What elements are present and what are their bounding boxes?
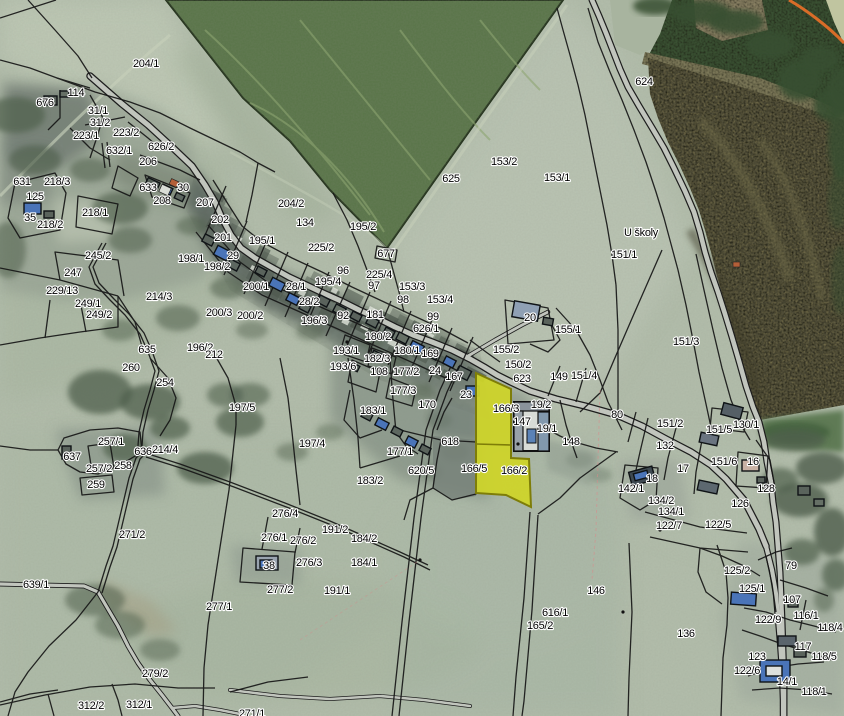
svg-text:151/2: 151/2	[657, 418, 683, 430]
svg-text:28/2: 28/2	[299, 296, 319, 308]
svg-text:276/3: 276/3	[296, 557, 322, 569]
svg-text:184/2: 184/2	[351, 533, 377, 545]
svg-text:122/5: 122/5	[705, 519, 731, 531]
svg-text:166/3: 166/3	[493, 403, 519, 415]
svg-text:191/1: 191/1	[324, 585, 350, 597]
svg-text:146: 146	[587, 585, 605, 597]
svg-text:636: 636	[134, 446, 152, 458]
svg-text:38: 38	[263, 560, 275, 572]
svg-text:30: 30	[177, 182, 189, 194]
svg-text:79: 79	[785, 560, 797, 572]
svg-text:247: 247	[64, 267, 82, 279]
svg-text:635: 635	[138, 344, 156, 356]
svg-text:626/1: 626/1	[413, 323, 439, 335]
svg-text:207: 207	[196, 197, 214, 209]
svg-text:193/1: 193/1	[333, 345, 359, 357]
svg-text:177/2: 177/2	[393, 366, 419, 378]
svg-text:24: 24	[429, 365, 441, 377]
svg-text:125/1: 125/1	[739, 583, 765, 595]
svg-text:276/1: 276/1	[261, 532, 287, 544]
svg-text:117: 117	[795, 641, 812, 653]
svg-text:153/2: 153/2	[491, 156, 517, 168]
svg-text:28/1: 28/1	[286, 281, 306, 293]
svg-text:107: 107	[783, 594, 801, 606]
svg-text:626/2: 626/2	[148, 141, 174, 153]
svg-text:249/2: 249/2	[86, 309, 112, 321]
svg-text:19/2: 19/2	[531, 399, 551, 411]
svg-text:245/2: 245/2	[85, 250, 111, 262]
svg-text:200/2: 200/2	[237, 310, 263, 322]
svg-text:623: 623	[513, 373, 531, 385]
svg-text:147: 147	[513, 416, 531, 428]
svg-text:18: 18	[646, 473, 658, 485]
svg-text:23: 23	[460, 389, 472, 401]
svg-text:166/2: 166/2	[501, 465, 527, 477]
svg-text:616/1: 616/1	[542, 607, 568, 619]
svg-text:197/4: 197/4	[299, 438, 325, 450]
svg-text:258: 258	[114, 460, 132, 472]
svg-text:181: 181	[366, 309, 384, 321]
svg-text:218/2: 218/2	[37, 219, 63, 231]
svg-text:271/2: 271/2	[119, 529, 145, 541]
svg-text:150/2: 150/2	[505, 359, 531, 371]
svg-text:198/1: 198/1	[178, 253, 204, 265]
svg-text:633: 633	[139, 182, 157, 194]
svg-text:200/3: 200/3	[206, 307, 232, 319]
svg-text:208: 208	[153, 195, 171, 207]
svg-text:195/1: 195/1	[249, 235, 275, 247]
svg-text:195/2: 195/2	[350, 221, 376, 233]
svg-text:177/1: 177/1	[387, 446, 413, 458]
svg-text:151/3: 151/3	[673, 336, 699, 348]
svg-text:214/3: 214/3	[146, 291, 172, 303]
svg-text:206: 206	[139, 156, 157, 168]
svg-text:312/2: 312/2	[78, 700, 104, 712]
svg-text:637: 637	[63, 451, 81, 463]
svg-text:197/5: 197/5	[229, 402, 255, 414]
svg-text:198/2: 198/2	[204, 261, 230, 273]
svg-text:80: 80	[611, 409, 623, 421]
svg-text:35: 35	[24, 212, 36, 224]
svg-text:122/7: 122/7	[656, 520, 682, 532]
svg-text:116/1: 116/1	[793, 610, 818, 622]
svg-text:223/1: 223/1	[73, 130, 99, 142]
svg-text:212: 212	[205, 349, 223, 361]
svg-text:169: 169	[421, 348, 439, 360]
svg-text:277/2: 277/2	[267, 584, 293, 596]
svg-text:271/1: 271/1	[239, 708, 265, 716]
svg-text:125: 125	[26, 191, 44, 203]
svg-text:195/4: 195/4	[315, 276, 341, 288]
svg-text:99: 99	[427, 311, 439, 323]
svg-text:165/2: 165/2	[527, 620, 553, 632]
svg-text:229/13: 229/13	[46, 285, 78, 297]
svg-text:180/2: 180/2	[365, 331, 391, 343]
svg-text:257/2: 257/2	[86, 463, 112, 475]
svg-text:312/1: 312/1	[126, 699, 152, 711]
svg-text:153/3: 153/3	[399, 281, 425, 293]
svg-text:108: 108	[370, 366, 388, 378]
svg-text:134/1: 134/1	[658, 506, 684, 518]
svg-text:151/5: 151/5	[706, 424, 732, 436]
svg-text:151/4: 151/4	[571, 370, 597, 382]
svg-text:153/4: 153/4	[427, 294, 453, 306]
svg-text:218/3: 218/3	[44, 176, 70, 188]
svg-text:122/6: 122/6	[734, 665, 760, 677]
svg-text:218/1: 218/1	[82, 207, 108, 219]
svg-text:225/2: 225/2	[308, 242, 334, 254]
svg-text:153/1: 153/1	[544, 172, 570, 184]
svg-text:31/1: 31/1	[88, 105, 108, 117]
svg-text:19/1: 19/1	[537, 423, 557, 435]
svg-text:151/6: 151/6	[711, 456, 737, 468]
svg-text:184/1: 184/1	[351, 557, 377, 569]
svg-text:118/5: 118/5	[811, 651, 836, 663]
svg-text:625: 625	[442, 173, 460, 185]
svg-text:134: 134	[296, 217, 314, 229]
svg-text:167: 167	[445, 371, 463, 383]
svg-text:U školy: U školy	[624, 227, 659, 239]
svg-text:214/4: 214/4	[152, 444, 178, 456]
svg-text:177/3: 177/3	[390, 385, 416, 397]
svg-text:202: 202	[211, 214, 229, 226]
svg-text:677: 677	[377, 248, 395, 260]
svg-text:149: 149	[550, 371, 568, 383]
svg-text:142/1: 142/1	[618, 483, 644, 495]
svg-text:136: 136	[677, 628, 695, 640]
svg-text:254: 254	[156, 377, 174, 389]
svg-text:17: 17	[677, 463, 689, 475]
svg-text:98: 98	[397, 294, 409, 306]
svg-text:114: 114	[68, 87, 85, 99]
svg-text:204/2: 204/2	[278, 198, 304, 210]
svg-text:618: 618	[441, 436, 459, 448]
svg-text:122/9: 122/9	[755, 614, 781, 626]
svg-text:196/3: 196/3	[301, 315, 327, 327]
svg-text:201: 201	[214, 232, 232, 244]
svg-text:259: 259	[87, 479, 105, 491]
svg-text:191/2: 191/2	[322, 524, 348, 536]
svg-text:632/1: 632/1	[106, 145, 132, 157]
svg-text:14/1: 14/1	[777, 676, 797, 688]
svg-text:276/4: 276/4	[272, 508, 298, 520]
svg-text:183/2: 183/2	[357, 475, 383, 487]
svg-text:279/2: 279/2	[142, 668, 168, 680]
svg-text:132: 132	[656, 440, 674, 452]
svg-text:151/1: 151/1	[611, 249, 637, 261]
svg-text:16: 16	[747, 456, 759, 468]
svg-text:277/1: 277/1	[206, 601, 232, 613]
svg-text:170: 170	[418, 399, 436, 411]
svg-text:20: 20	[524, 312, 536, 324]
svg-text:620/5: 620/5	[408, 465, 434, 477]
svg-text:631: 631	[13, 176, 31, 188]
svg-text:92: 92	[337, 310, 349, 322]
svg-text:676: 676	[36, 97, 54, 109]
svg-text:624: 624	[635, 76, 653, 88]
svg-text:148: 148	[562, 436, 580, 448]
svg-text:223/2: 223/2	[113, 127, 139, 139]
svg-text:118/4: 118/4	[817, 622, 842, 634]
svg-text:97: 97	[368, 280, 380, 292]
svg-text:123: 123	[748, 651, 766, 663]
svg-text:125/2: 125/2	[724, 565, 750, 577]
svg-text:118/1: 118/1	[801, 686, 826, 698]
svg-text:193/6: 193/6	[330, 361, 356, 373]
svg-text:200/1: 200/1	[243, 281, 269, 293]
svg-text:276/2: 276/2	[290, 535, 316, 547]
svg-text:128: 128	[757, 483, 775, 495]
svg-text:204/1: 204/1	[133, 58, 159, 70]
svg-text:182/3: 182/3	[364, 353, 390, 365]
svg-text:180/1: 180/1	[394, 345, 420, 357]
svg-text:130/1: 130/1	[733, 419, 759, 431]
svg-text:639/1: 639/1	[23, 579, 49, 591]
svg-text:155/2: 155/2	[493, 344, 519, 356]
svg-text:166/5: 166/5	[461, 463, 487, 475]
svg-text:155/1: 155/1	[555, 324, 581, 336]
svg-text:183/1: 183/1	[360, 405, 386, 417]
svg-text:257/1: 257/1	[98, 436, 124, 448]
svg-text:31/2: 31/2	[90, 117, 110, 129]
svg-text:260: 260	[122, 362, 140, 374]
svg-text:126: 126	[731, 498, 749, 510]
